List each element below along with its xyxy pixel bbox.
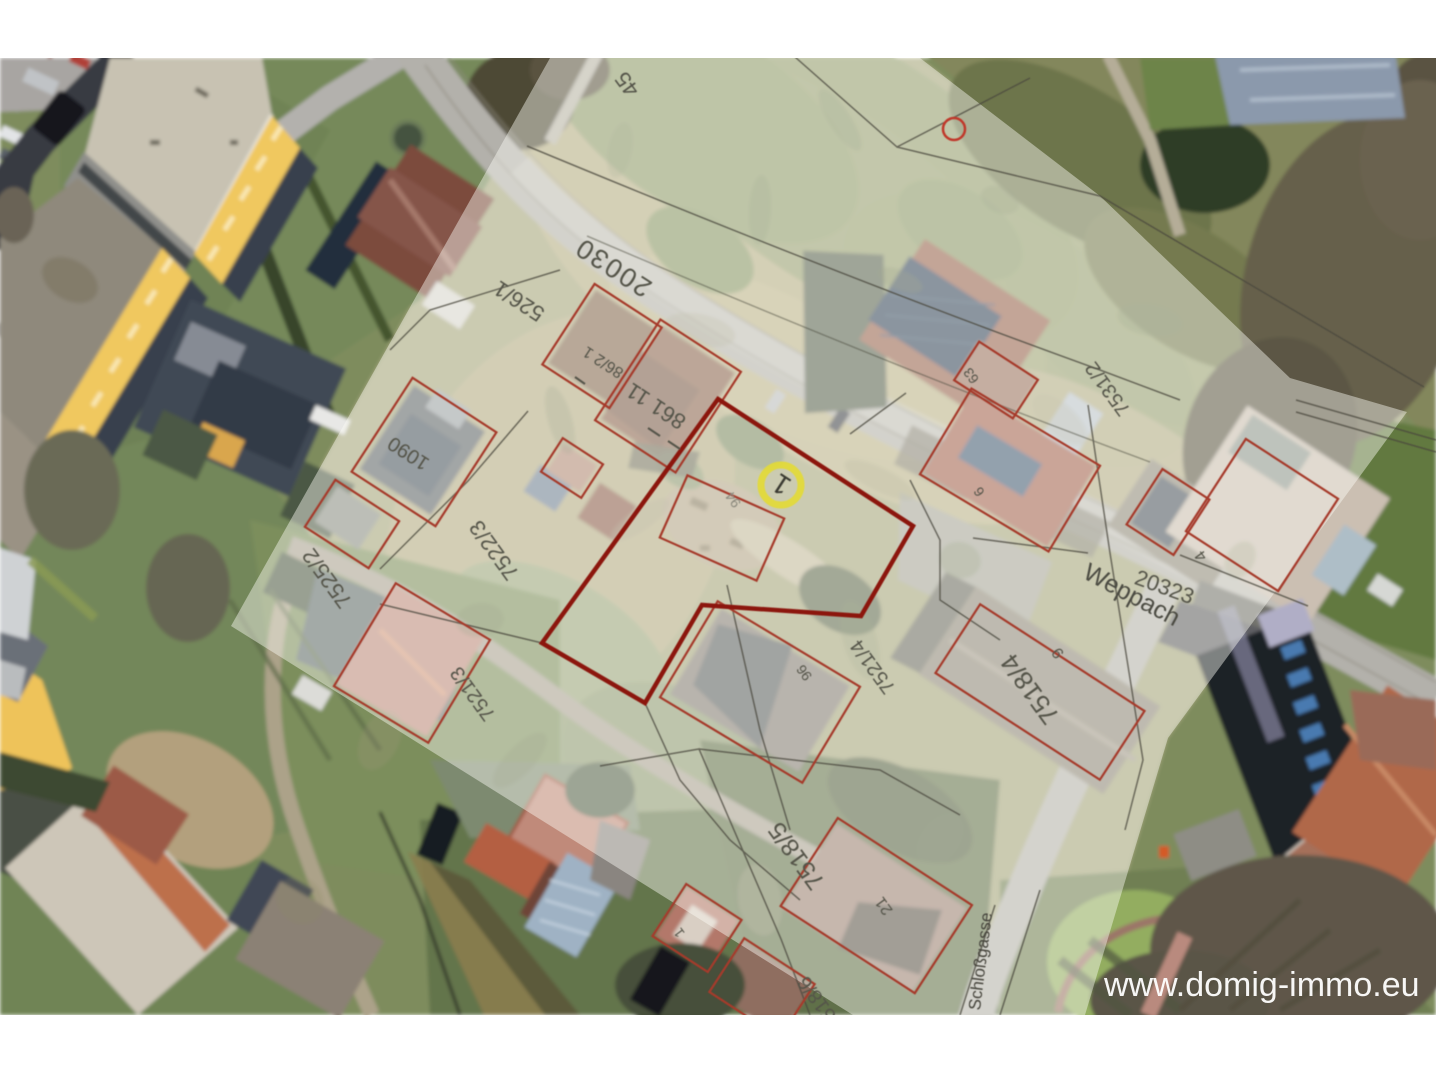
svg-text:www.domig-immo.eu: www.domig-immo.eu	[1103, 966, 1420, 1004]
